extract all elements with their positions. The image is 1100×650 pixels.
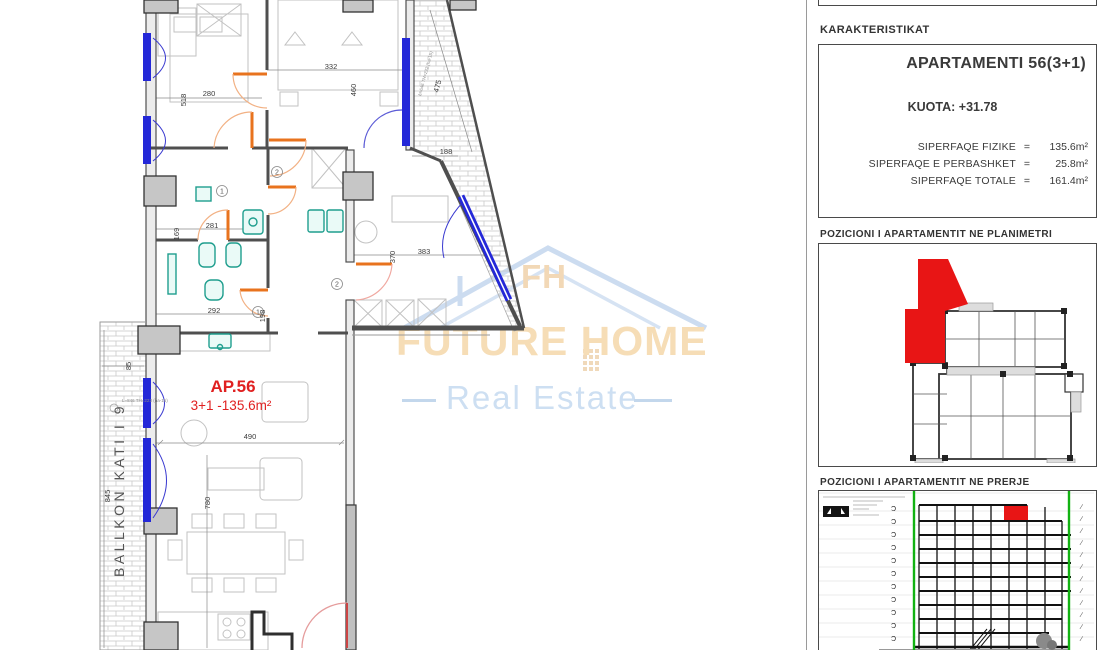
dim-332: 332: [325, 62, 338, 71]
dim-460: 460: [349, 84, 358, 97]
svg-text:Ɔ: Ɔ: [891, 597, 896, 604]
stove: [218, 614, 250, 640]
characteristics-box: APARTAMENTI 56(3+1) KUOTA: +31.78 SIPERF…: [818, 44, 1097, 218]
side-table: [355, 221, 377, 243]
door-tag: 1: [220, 189, 224, 196]
dim-85: 85: [124, 362, 133, 370]
svg-text:∕: ∕: [1079, 612, 1084, 619]
balcony-door-arc: [364, 110, 402, 148]
svg-text:Ɔ: Ɔ: [891, 571, 896, 578]
sheet-divider-line: [806, 0, 807, 650]
dim-281: 281: [206, 221, 219, 230]
dim-383: 383: [418, 247, 431, 256]
area-label: SIPERFAQE FIZIKE: [918, 139, 1016, 156]
planimetri-title: POZICIONI I APARTAMENTIT NE PLANIMETRI: [820, 229, 1052, 240]
apartment-title: APARTAMENTI 56(3+1): [906, 55, 1086, 73]
area-value: 161.4m²: [1038, 173, 1088, 190]
svg-text:∕: ∕: [1079, 576, 1084, 583]
dim-780: 780: [203, 497, 212, 510]
svg-text:Ɔ: Ɔ: [891, 519, 896, 526]
dim-188: 188: [440, 147, 453, 156]
window-4: [143, 438, 151, 522]
dim-198: 198: [258, 310, 267, 323]
svg-text:Ɔ: Ɔ: [891, 506, 896, 513]
svg-text:Ɔ: Ɔ: [891, 610, 896, 617]
svg-text:Ɔ: Ɔ: [891, 584, 896, 591]
window-1: [143, 33, 151, 81]
bidet: [243, 210, 263, 234]
window-specs: L=646 TH=222 (ha-15) L=846 TH=223 (ha-15…: [110, 50, 434, 412]
washer: [196, 187, 211, 201]
toilet-2: [226, 243, 241, 267]
unit-label-group: AP.56 3+1 -135.6m²: [191, 377, 272, 413]
area-row: SIPERFAQE FIZIKE = 135.6m²: [833, 139, 1088, 156]
balcony-right-triangular: [412, 0, 524, 331]
unit-label: AP.56: [210, 377, 255, 396]
svg-text:Ɔ: Ɔ: [891, 636, 896, 643]
window-3: [143, 378, 151, 428]
dim-169: 169: [172, 228, 181, 241]
area-label: SIPERFAQE TOTALE: [911, 173, 1016, 190]
dim-292: 292: [208, 306, 221, 315]
dining-table: [187, 532, 285, 574]
area-value: 135.6m²: [1038, 139, 1088, 156]
window-5: [402, 38, 410, 146]
boiler-1: [308, 210, 324, 232]
svg-text:∕: ∕: [1079, 624, 1084, 631]
svg-text:Ɔ: Ɔ: [891, 545, 896, 552]
equals-sign: =: [1022, 156, 1032, 173]
svg-text:∕: ∕: [1079, 516, 1084, 523]
svg-text:∕: ∕: [1079, 540, 1084, 547]
balcony-label: BALLKON KATI I 9: [111, 403, 127, 577]
entry-door-arc: [302, 603, 347, 648]
dim-518: 518: [179, 94, 188, 107]
svg-text:∕: ∕: [1079, 504, 1084, 511]
building-section: ƆƆƆ ƆƆƆ ƆƆƆ ƆƆ ∕∕∕ ∕∕∕ ∕∕∕ ∕∕∕: [819, 491, 1094, 650]
svg-text:Ɔ: Ɔ: [891, 558, 896, 565]
wall-kitchen-nook: [252, 612, 292, 650]
svg-text:∕: ∕: [1079, 564, 1084, 571]
window-2: [143, 116, 151, 164]
equals-sign: =: [1022, 173, 1032, 190]
toilet-1: [199, 243, 215, 267]
prerje-box: ƆƆƆ ƆƆƆ ƆƆƆ ƆƆ ∕∕∕ ∕∕∕ ∕∕∕ ∕∕∕: [818, 490, 1097, 650]
area-label: SIPERFAQE E PERBASHKET: [869, 156, 1016, 173]
dim-280: 280: [203, 89, 216, 98]
top-cropped-box: [818, 0, 1097, 6]
kuota-value: KUOTA: +31.78: [839, 100, 1066, 114]
svg-text:∕: ∕: [1079, 588, 1084, 595]
unit-details: 3+1 -135.6m²: [191, 398, 272, 413]
area-row: SIPERFAQE E PERBASHKET = 25.8m²: [833, 156, 1088, 173]
wall-left: [146, 0, 156, 650]
svg-text:Ɔ: Ɔ: [891, 623, 896, 630]
karakteristikat-title: KARAKTERISTIKAT: [820, 24, 930, 36]
door-tag: 2: [335, 282, 339, 289]
floorplan-sheet: FH FUTURE HOME Real Estate: [0, 0, 1100, 650]
coffee-table: [181, 420, 207, 446]
area-table: SIPERFAQE FIZIKE = 135.6m² SIPERFAQE E P…: [833, 139, 1088, 189]
planimetri-box: [818, 243, 1097, 467]
kitchen-sink: [209, 334, 231, 348]
elevation-markers: ƆƆƆ ƆƆƆ ƆƆƆ ƆƆ: [891, 506, 896, 643]
floor-plan: 1 2 2 1 280 518 332 460 188 475 169 281 …: [0, 0, 810, 650]
area-row: SIPERFAQE TOTALE = 161.4m²: [833, 173, 1088, 190]
svg-text:Ɔ: Ɔ: [891, 532, 896, 539]
equals-sign: =: [1022, 139, 1032, 156]
sofa: [260, 458, 302, 500]
door-tags: 1 2 2 1: [217, 167, 343, 318]
fixtures: [168, 187, 343, 350]
prerje-title: POZICIONI I APARTAMENTIT NE PRERJE: [820, 477, 1030, 488]
svg-text:∕: ∕: [1079, 528, 1084, 535]
svg-text:∕: ∕: [1079, 600, 1084, 607]
dim-490: 490: [244, 432, 257, 441]
washbasin: [205, 280, 223, 300]
area-value: 25.8m²: [1038, 156, 1088, 173]
section-highlight: [1004, 506, 1028, 520]
door-tag: 2: [275, 170, 279, 177]
window-spec-2: L=846 TH=223 (ha-15): [122, 398, 168, 403]
bath-cabinet: [168, 254, 176, 294]
boiler-2: [327, 210, 343, 232]
dim-370: 370: [388, 251, 397, 264]
doors: [198, 74, 392, 648]
building-plan-minimap: [819, 244, 1094, 463]
